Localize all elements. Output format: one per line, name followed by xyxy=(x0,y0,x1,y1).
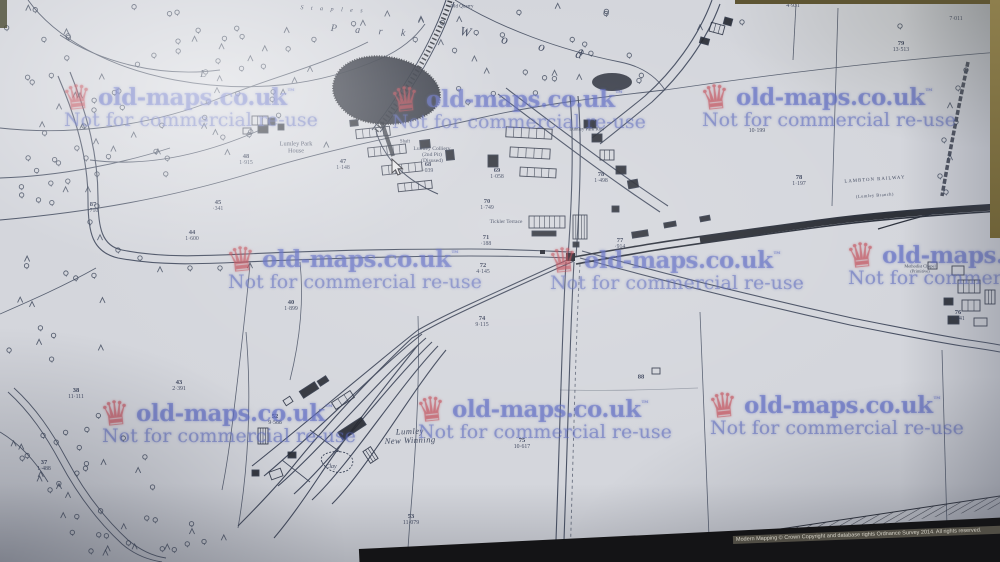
tree-icon xyxy=(34,168,38,172)
tree-icon xyxy=(164,172,168,176)
tree-icon xyxy=(284,27,289,32)
tree-icon xyxy=(20,456,24,460)
building xyxy=(592,134,602,142)
tree-icon xyxy=(312,37,316,41)
tree-icon xyxy=(64,271,68,275)
tree-icon xyxy=(61,513,66,518)
parcel-id: 68 xyxy=(423,161,434,168)
tree-icon xyxy=(637,78,641,82)
parcel-acreage: ·341 xyxy=(213,206,224,212)
tree-icon xyxy=(77,445,81,449)
trees-layer xyxy=(4,3,968,555)
tree-trunk xyxy=(167,161,168,162)
parcel-id: 43 xyxy=(172,379,186,386)
parcel-acreage: 1·197 xyxy=(792,181,806,187)
parcel-acreage: 11·111 xyxy=(68,394,84,400)
tree-trunk xyxy=(454,53,455,54)
parcel-acreage: 13·513 xyxy=(893,47,909,53)
tree-trunk xyxy=(76,280,77,281)
parcel-number: 371·488 xyxy=(37,459,51,473)
parcel-acreage: 11·079 xyxy=(403,520,419,526)
tree-icon xyxy=(99,74,104,79)
tree-trunk xyxy=(87,432,88,433)
tree-icon xyxy=(276,113,280,117)
tree-icon xyxy=(38,326,42,330)
map-label-line: Shaft xyxy=(400,139,410,144)
tree-icon xyxy=(97,533,101,537)
map-label: Methodist Chapel(Primitive) xyxy=(904,264,935,273)
tree-trunk xyxy=(50,492,51,493)
tree-icon xyxy=(26,5,31,10)
tree-icon xyxy=(160,123,164,127)
tree-icon xyxy=(457,17,462,22)
parcel-acreage: 1·148 xyxy=(336,165,350,171)
tree-icon xyxy=(36,339,41,344)
tree-trunk xyxy=(59,486,60,487)
tree-trunk xyxy=(900,29,901,30)
map-label-line: Old Quarry xyxy=(451,4,474,9)
tree-icon xyxy=(7,348,11,352)
parcel-acreage: 1·641 xyxy=(951,316,965,322)
tree-trunk xyxy=(187,546,188,547)
tree-icon xyxy=(36,198,40,202)
tree-icon xyxy=(280,89,285,94)
building xyxy=(600,150,614,160)
map-label-line: (Primitive) xyxy=(904,269,935,274)
tree-icon xyxy=(153,518,157,522)
tree-icon xyxy=(239,66,243,70)
tree-trunk xyxy=(137,67,138,68)
parcel-id: 40 xyxy=(284,299,298,306)
tree-icon xyxy=(898,24,902,28)
tree-trunk xyxy=(273,94,274,95)
tree-icon xyxy=(24,256,29,261)
parcel-id: 45 xyxy=(213,199,224,206)
tree-trunk xyxy=(966,73,967,74)
map-label: Lumley Park Row xyxy=(569,127,604,132)
tree-trunk xyxy=(65,435,66,436)
tree-trunk xyxy=(26,268,27,269)
map-label-line: House xyxy=(280,148,313,155)
screen-bezel-right xyxy=(990,0,1000,238)
tree-trunk xyxy=(128,545,129,546)
tree-icon xyxy=(50,200,54,204)
tree-trunk xyxy=(177,15,178,16)
tree-icon xyxy=(472,56,477,61)
tree-trunk xyxy=(152,490,153,491)
building xyxy=(258,428,268,444)
building xyxy=(338,417,366,440)
tree-trunk xyxy=(242,39,243,40)
tree-icon xyxy=(56,161,60,165)
tree-icon xyxy=(192,36,197,41)
building xyxy=(488,155,498,167)
parcel-acreage: ·188 xyxy=(481,241,492,247)
screen-photo: Lumley ParkHouseLumley Colliery(2nd Pit)… xyxy=(0,0,1000,562)
parcel-id: 69 xyxy=(490,167,504,174)
tree-trunk xyxy=(43,438,44,439)
tree-lined-lane xyxy=(942,62,968,196)
parcel-acreage: 1·488 xyxy=(37,466,51,472)
parcel-id: 74 xyxy=(475,315,488,322)
tree-trunk xyxy=(208,104,209,105)
map-label: Clay xyxy=(325,464,336,470)
tree-trunk xyxy=(493,96,494,97)
parcel-number: 724·145 xyxy=(476,262,490,276)
map-label-line: L xyxy=(200,69,206,81)
tree-icon xyxy=(19,185,23,189)
tree-icon xyxy=(92,108,96,112)
tree-trunk xyxy=(279,118,280,119)
tree-trunk xyxy=(40,330,41,331)
parcel-id: 77 xyxy=(615,237,626,244)
tree-icon xyxy=(112,90,116,94)
tree-icon xyxy=(132,4,136,8)
tree-icon xyxy=(111,146,116,151)
parcel-acreage: 1·915 xyxy=(239,160,253,166)
parcel-number: 5311·079 xyxy=(403,513,419,527)
screen-bezel-top xyxy=(735,0,1000,4)
parcel-id: 88 xyxy=(638,373,645,380)
tree-trunk xyxy=(99,537,100,538)
map-label-line: New Winning xyxy=(384,435,435,446)
tree-icon xyxy=(19,193,23,197)
parcel-number: 10·199 xyxy=(749,128,765,134)
tree-icon xyxy=(235,26,239,30)
tree-icon xyxy=(42,37,46,41)
tree-icon xyxy=(96,413,100,417)
tree-trunk xyxy=(639,83,640,84)
tree-icon xyxy=(627,53,631,57)
tree-icon xyxy=(97,235,102,240)
tree-icon xyxy=(452,48,456,52)
tree-icon xyxy=(413,37,417,41)
parcel-number: 87·710 xyxy=(88,201,99,215)
tree-icon xyxy=(56,104,61,109)
parcel-number: 481·915 xyxy=(239,153,253,167)
tree-trunk xyxy=(55,162,56,163)
tree-trunk xyxy=(198,33,199,34)
parcel-number: 529·588 xyxy=(268,413,282,427)
tree-icon xyxy=(84,461,88,465)
tree-trunk xyxy=(85,471,86,472)
building xyxy=(612,206,619,212)
tree-icon xyxy=(51,333,55,337)
tree-icon xyxy=(484,68,489,73)
tree-icon xyxy=(271,90,275,94)
tree-icon xyxy=(202,539,206,543)
parcel-number: 749·115 xyxy=(475,315,488,329)
tree-trunk xyxy=(166,176,167,177)
tree-trunk xyxy=(108,159,109,160)
tree-icon xyxy=(523,70,527,74)
tree-icon xyxy=(577,74,582,79)
tree-trunk xyxy=(554,81,555,82)
tree-icon xyxy=(150,485,154,489)
building xyxy=(573,242,579,247)
tree-icon xyxy=(126,541,130,545)
tree-icon xyxy=(222,36,226,40)
tree-trunk xyxy=(174,552,175,553)
tree-icon xyxy=(26,156,30,160)
tree-trunk xyxy=(223,140,224,141)
tree-icon xyxy=(240,34,244,38)
tree-icon xyxy=(105,546,110,551)
tree-trunk xyxy=(572,42,573,43)
tree-trunk xyxy=(288,51,289,52)
parcel-number: 88 xyxy=(638,373,645,380)
tree-trunk xyxy=(241,71,242,72)
tree-icon xyxy=(944,190,948,194)
tree-icon xyxy=(533,91,537,95)
tree-icon xyxy=(552,76,556,80)
map-label: Lumley ParkHouse xyxy=(280,141,313,154)
tree-trunk xyxy=(535,95,536,96)
tree-trunk xyxy=(21,189,22,190)
parcel-acreage: ·914 xyxy=(615,244,626,250)
parcel-number: 691·058 xyxy=(490,167,504,181)
tree-icon xyxy=(52,157,56,161)
tree-trunk xyxy=(169,16,170,17)
tree-icon xyxy=(24,264,28,268)
tree-trunk xyxy=(119,93,120,94)
tree-icon xyxy=(98,345,103,350)
tree-icon xyxy=(117,89,121,93)
building xyxy=(506,127,552,139)
tree-icon xyxy=(40,122,45,127)
parcel-number: 7913·513 xyxy=(893,40,909,54)
tree-icon xyxy=(466,100,470,104)
tree-trunk xyxy=(53,338,54,339)
tree-icon xyxy=(49,73,53,77)
tree-trunk xyxy=(606,16,607,17)
tree-trunk xyxy=(204,544,205,545)
tree-icon xyxy=(75,146,79,150)
tree-icon xyxy=(42,131,46,135)
parcel-number: 71·188 xyxy=(481,234,492,248)
building xyxy=(299,382,318,399)
map-label: Tickler Terrace xyxy=(490,220,523,226)
tree-trunk xyxy=(519,15,520,16)
screen-corner xyxy=(0,0,7,28)
tree-trunk xyxy=(314,42,315,43)
tree-trunk xyxy=(459,91,460,92)
tree-trunk xyxy=(162,551,163,552)
tree-icon xyxy=(938,174,942,178)
tree-trunk xyxy=(52,205,53,206)
building xyxy=(332,391,355,410)
tree-icon xyxy=(30,80,34,84)
tree-trunk xyxy=(154,58,155,59)
tree-icon xyxy=(185,542,189,546)
tree-icon xyxy=(942,138,946,142)
tree-icon xyxy=(85,427,89,431)
tree-trunk xyxy=(22,197,23,198)
building xyxy=(278,124,284,130)
tree-trunk xyxy=(415,42,416,43)
tree-trunk xyxy=(51,186,52,187)
tree-icon xyxy=(104,534,108,538)
building xyxy=(573,215,587,239)
tree-icon xyxy=(552,70,557,75)
tree-trunk xyxy=(106,538,107,539)
tree-trunk xyxy=(51,362,52,363)
tree-trunk xyxy=(218,63,219,64)
parcel-number: 781·197 xyxy=(792,174,806,188)
tree-icon xyxy=(947,103,952,108)
tree-icon xyxy=(135,62,139,66)
tree-icon xyxy=(138,256,142,260)
tree-icon xyxy=(63,187,68,192)
building xyxy=(510,147,550,159)
parcel-id: 52 xyxy=(268,413,282,420)
map-label: Shaft xyxy=(400,139,410,144)
tree-icon xyxy=(101,460,106,465)
tree-icon xyxy=(49,357,53,361)
tree-icon xyxy=(167,11,171,15)
tree-trunk xyxy=(162,128,163,129)
parcel-number: 432·391 xyxy=(172,379,186,393)
tree-trunk xyxy=(156,154,157,155)
tree-trunk xyxy=(956,125,957,126)
tree-icon xyxy=(570,37,574,41)
tree-icon xyxy=(121,436,125,440)
tree-trunk xyxy=(237,31,238,32)
tree-trunk xyxy=(77,519,78,520)
tree-icon xyxy=(189,522,193,526)
parcel-number: 701·749 xyxy=(480,198,494,212)
tree-icon xyxy=(136,468,141,473)
tree-trunk xyxy=(9,353,10,354)
building xyxy=(529,216,565,228)
tree-icon xyxy=(196,28,200,32)
parcel-id: 70 xyxy=(480,198,494,205)
tree-trunk xyxy=(190,271,191,272)
tree-trunk xyxy=(525,75,526,76)
tree-icon xyxy=(145,516,149,520)
building xyxy=(368,144,407,157)
parcel-acreage: 1·058 xyxy=(490,174,504,180)
tree-trunk xyxy=(44,135,45,136)
tree-icon xyxy=(63,430,67,434)
tree-icon xyxy=(92,98,96,102)
tree-trunk xyxy=(958,91,959,92)
tree-icon xyxy=(37,476,42,481)
map-label: Old Quarry xyxy=(451,4,474,9)
tree-icon xyxy=(438,40,443,45)
building xyxy=(952,266,964,275)
tree-icon xyxy=(213,130,218,135)
tree-icon xyxy=(740,20,744,24)
tree-trunk xyxy=(145,459,146,460)
parcel-number: 471·148 xyxy=(336,158,350,172)
tree-icon xyxy=(89,549,93,553)
parcel-id: 37 xyxy=(37,459,51,466)
tree-icon xyxy=(216,59,220,63)
tree-icon xyxy=(214,88,219,93)
building xyxy=(288,452,296,458)
tree-icon xyxy=(131,132,136,137)
field-boundaries xyxy=(0,4,1000,562)
tree-icon xyxy=(160,547,164,551)
tree-icon xyxy=(221,535,226,540)
tree-trunk xyxy=(272,102,273,103)
parcel-number: 3811·111 xyxy=(68,387,84,401)
map-label: LumleyNew Winning xyxy=(384,426,436,446)
tree-trunk xyxy=(94,113,95,114)
tree-icon xyxy=(83,466,87,470)
parcel-acreage: 1·498 xyxy=(594,178,608,184)
tree-trunk xyxy=(94,278,95,279)
parcel-id: 47 xyxy=(336,158,350,165)
tree-icon xyxy=(75,514,79,518)
tree-trunk xyxy=(94,103,95,104)
tree-trunk xyxy=(118,253,119,254)
tree-trunk xyxy=(468,104,469,105)
tree-trunk xyxy=(100,513,101,514)
tree-icon xyxy=(956,86,960,90)
tree-trunk xyxy=(178,54,179,55)
tree-trunk xyxy=(51,78,52,79)
tree-trunk xyxy=(123,441,124,442)
building xyxy=(700,215,711,222)
tree-icon xyxy=(165,544,170,549)
tree-trunk xyxy=(86,161,87,162)
tree-trunk xyxy=(191,526,192,527)
parcel-acreage: 9·588 xyxy=(268,420,282,426)
building xyxy=(944,298,953,305)
building xyxy=(532,231,556,236)
building xyxy=(268,118,275,125)
parcel-id: 71 xyxy=(481,234,492,241)
parcel-id: 78 xyxy=(594,171,608,178)
map-canvas xyxy=(0,0,1000,562)
building xyxy=(985,290,995,304)
tree-trunk xyxy=(742,25,743,26)
tree-icon xyxy=(100,298,105,303)
tree-icon xyxy=(176,39,180,43)
tree-icon xyxy=(385,11,390,16)
tree-trunk xyxy=(134,9,135,10)
tree-icon xyxy=(152,53,156,57)
building xyxy=(252,470,259,476)
parcel-id: 53 xyxy=(403,513,419,520)
parcel-number: 781·498 xyxy=(594,171,608,185)
tree-icon xyxy=(582,42,586,46)
tree-trunk xyxy=(122,110,123,111)
tree-trunk xyxy=(66,276,67,277)
parcel-acreage: 10·617 xyxy=(514,444,530,450)
tree-icon xyxy=(143,455,147,459)
tree-icon xyxy=(11,441,16,446)
parcel-acreage: 9·115 xyxy=(475,322,488,328)
tree-icon xyxy=(176,49,180,53)
building xyxy=(974,318,987,326)
tree-trunk xyxy=(68,184,69,185)
tree-trunk xyxy=(155,522,156,523)
tree-icon xyxy=(18,297,23,302)
tree-trunk xyxy=(56,445,57,446)
parcel-number: 45·341 xyxy=(213,199,224,213)
tree-trunk xyxy=(91,553,92,554)
parcel-id: 75 xyxy=(514,437,530,444)
tree-icon xyxy=(188,266,192,270)
tree-icon xyxy=(202,115,206,119)
tree-trunk xyxy=(44,42,45,43)
tree-trunk xyxy=(263,69,264,70)
map-label-line: Tickler Terrace xyxy=(490,220,523,226)
parcel-acreage: 10·199 xyxy=(749,128,765,134)
